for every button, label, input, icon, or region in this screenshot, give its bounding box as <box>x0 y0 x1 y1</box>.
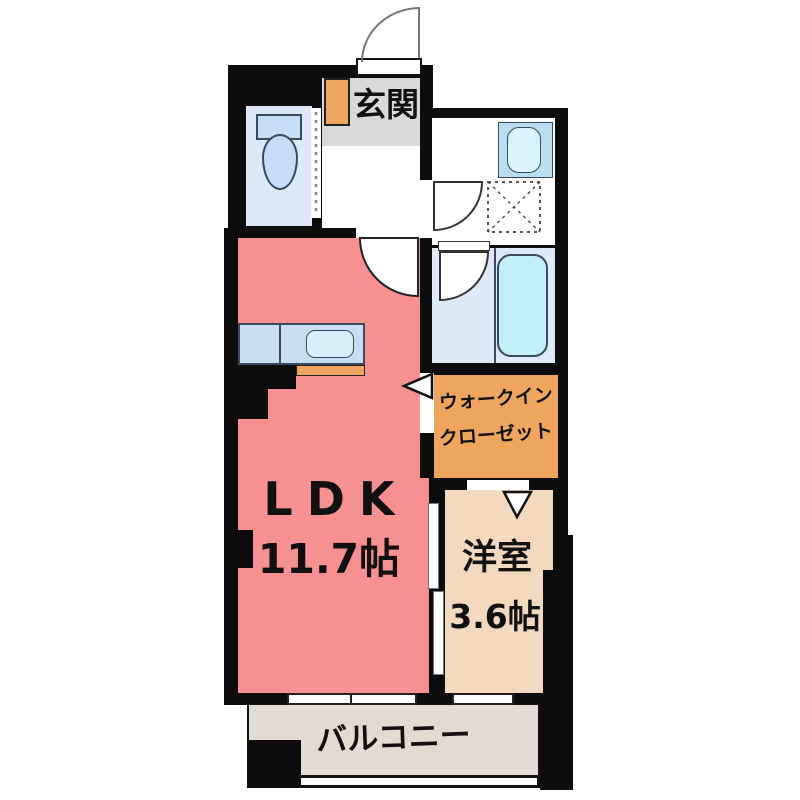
washer-pan-icon <box>488 182 540 232</box>
western-room-entry-arrow <box>504 492 531 517</box>
ldk-label: LDK <box>238 475 420 523</box>
ldk-door-arc <box>360 238 418 296</box>
floor-plan: 玄関 LDK 11.7帖 ウォークイン クローゼット 洋室 3.6帖 バルコニー <box>0 0 800 800</box>
ldk-area-label: 11.7帖 <box>238 538 420 581</box>
entrance-door-arc <box>362 8 420 62</box>
genkan-label: 玄関 <box>350 88 422 123</box>
western-room-area-label: 3.6帖 <box>441 600 549 635</box>
wic-entry-arrow <box>404 374 432 398</box>
bath-door-arc <box>440 252 488 300</box>
western-room-label: 洋室 <box>443 540 551 577</box>
washroom-door-arc <box>434 182 482 230</box>
